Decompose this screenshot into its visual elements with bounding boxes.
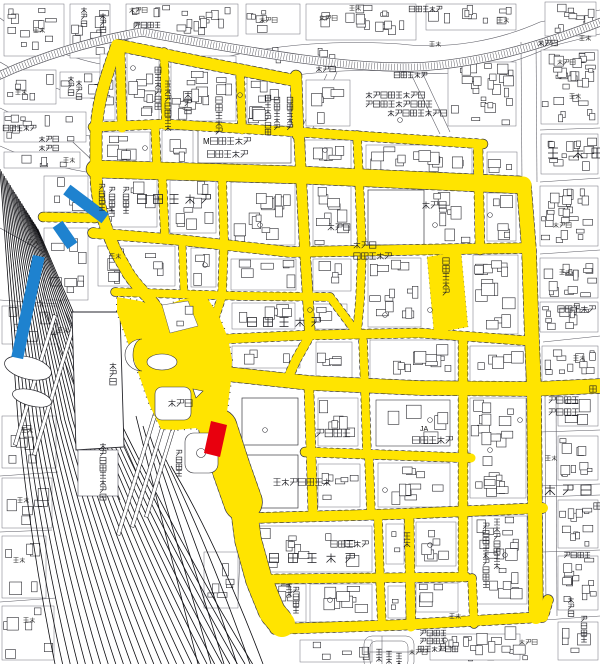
svg-text:JA: JA (420, 426, 429, 433)
svg-text:M: M (203, 137, 210, 146)
